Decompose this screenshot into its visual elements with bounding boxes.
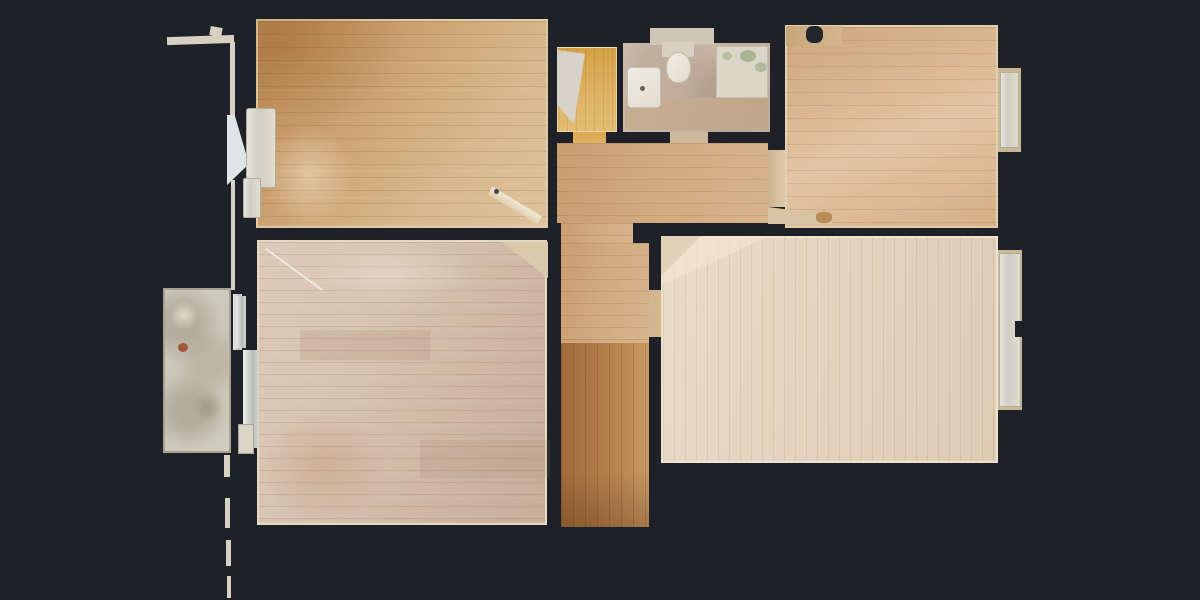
outer-wall-vertical-mid [231,180,235,290]
shower-moss-spot-2 [755,62,767,72]
room-bottom-left-light-shading [300,243,480,303]
corridor-upper-floor [561,243,649,343]
wall-reveal-blob [816,212,832,223]
window-niche-notch [1015,321,1024,337]
radiator-strip-a [236,296,246,348]
room-top-right-corner-blob [806,26,823,43]
balcony-stain-light [170,300,198,330]
sink-drain-dot [640,86,645,91]
balcony-stain-rust [178,343,188,352]
floorplan-canvas [0,0,1200,600]
doorway-threshold-bottom-right [649,290,661,337]
doorway-threshold-top-right [768,150,785,207]
door-handle-dot [494,189,499,194]
window-sill-top-right [1000,72,1019,148]
room-top-right-floor [785,25,998,228]
shower-moss-spot-3 [722,52,732,60]
outer-wall-dash-3 [226,540,231,566]
room-top-left-warm-shading [256,19,406,129]
outer-wall-top-ledge [167,35,234,45]
corridor-doorway-floor [561,223,633,244]
window-sill-top-left-upper [246,108,276,188]
outer-wall-tick [209,26,222,37]
hallway-floor [557,143,768,223]
room-bottom-left-warm-shading [258,410,388,524]
outer-wall-dash-1 [224,455,230,477]
radiator-block-c [238,424,254,454]
balcony-stain-dark [195,390,221,424]
outer-wall-dash-2 [225,498,230,528]
outer-wall-vertical-upper [230,42,235,120]
window-sill-top-left-lower [243,178,261,218]
scan-background: { "scene": { "kind": "top-down photogram… [0,0,1200,600]
room-bottom-left-plank-patch-1 [300,330,430,360]
outer-wall-dash-4 [227,576,231,598]
room-bottom-left-plank-patch-2 [420,440,550,478]
corridor-bottom-shade [561,470,649,527]
toilet-bowl [666,52,691,83]
shower-moss-spot-1 [740,50,756,62]
room-bottom-right-floor [661,236,998,463]
